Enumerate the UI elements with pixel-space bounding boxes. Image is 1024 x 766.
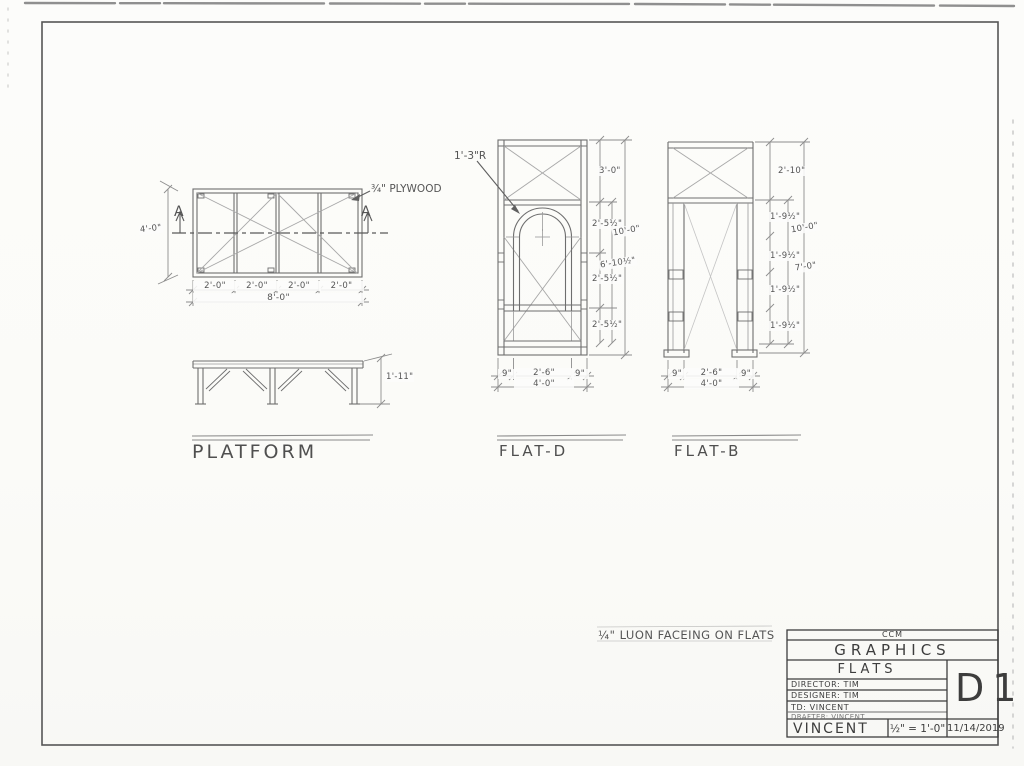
plywood-note: ¾" PLYWOOD	[371, 183, 442, 195]
platform-height-dim: 1'-11"	[385, 372, 414, 382]
flat-b-seg-dim: 1'-9½"	[769, 212, 801, 222]
flat-b-title: FLAT-B	[674, 442, 741, 460]
leg-braces	[206, 369, 349, 391]
section-letter-left: A	[174, 204, 184, 220]
title-block-td: TD: VINCENT	[791, 703, 849, 712]
drafting-sheet: ¾" PLYWOOD A A 4'-0" 2'-0" 2'-0" 2'-0" 2…	[0, 0, 1024, 766]
section-letter-right: A	[361, 204, 371, 220]
flat-d-width-dim: 4'-0"	[514, 379, 574, 389]
flat-d-title: FLAT-D	[499, 442, 568, 460]
arch-center-marks	[506, 212, 579, 246]
title-block-date: 11/14/2019	[947, 723, 998, 734]
platform-bay-dim: 2'-0"	[319, 281, 364, 291]
sheet-number: D1	[955, 666, 1024, 710]
title-block-dept: GRAPHICS	[787, 641, 998, 659]
platform-width-dim: 8'-0"	[193, 293, 364, 303]
flat-b-seg-dim: 1'-9½"	[769, 321, 801, 331]
title-block-org: CCM	[787, 630, 998, 639]
flat-b-width-dim: 4'-0"	[684, 379, 739, 389]
flat-b-seg-dim: 1'-9½"	[769, 251, 801, 261]
flat-b-seg-dim: 1'-9½"	[769, 285, 801, 295]
title-block-drafter: DRAFTER: VINCENT	[791, 713, 865, 721]
platform-title: PLATFORM	[192, 441, 317, 463]
arch-radius-note: 1'-3"R	[454, 150, 486, 162]
platform-bay-dim: 2'-0"	[193, 281, 237, 291]
flat-d-bottom-dim: 2'-6"	[514, 368, 574, 378]
title-block-director: DIRECTOR: TIM	[791, 680, 859, 689]
flat-d-seg-dim: 2'-5½"	[591, 274, 623, 284]
flat-d-bottom-dim: 9"	[571, 369, 589, 379]
platform-bay-dim: 2'-0"	[277, 281, 321, 291]
flat-d-seg-dim: 2'-5½"	[591, 320, 623, 330]
flat-b-top-seg-dim: 2'-10"	[777, 166, 806, 176]
facing-note: ¼" LUON FACEING ON FLATS	[598, 628, 775, 642]
title-block-project: FLATS	[787, 662, 947, 677]
flat-b-bottom-dim: 9"	[737, 369, 755, 379]
flat-d-elevation	[477, 136, 632, 440]
flat-b-bottom-dim: 2'-6"	[684, 368, 739, 378]
section-line	[172, 212, 388, 233]
platform-side-view	[192, 354, 392, 440]
title-block-scale: ½" = 1'-0"	[888, 723, 947, 735]
title-block-designer: DESIGNER: TIM	[791, 691, 859, 700]
platform-bay-dim: 2'-0"	[235, 281, 279, 291]
flat-d-seg-dim: 3'-0"	[598, 166, 622, 176]
title-block-name: VINCENT	[793, 721, 869, 737]
